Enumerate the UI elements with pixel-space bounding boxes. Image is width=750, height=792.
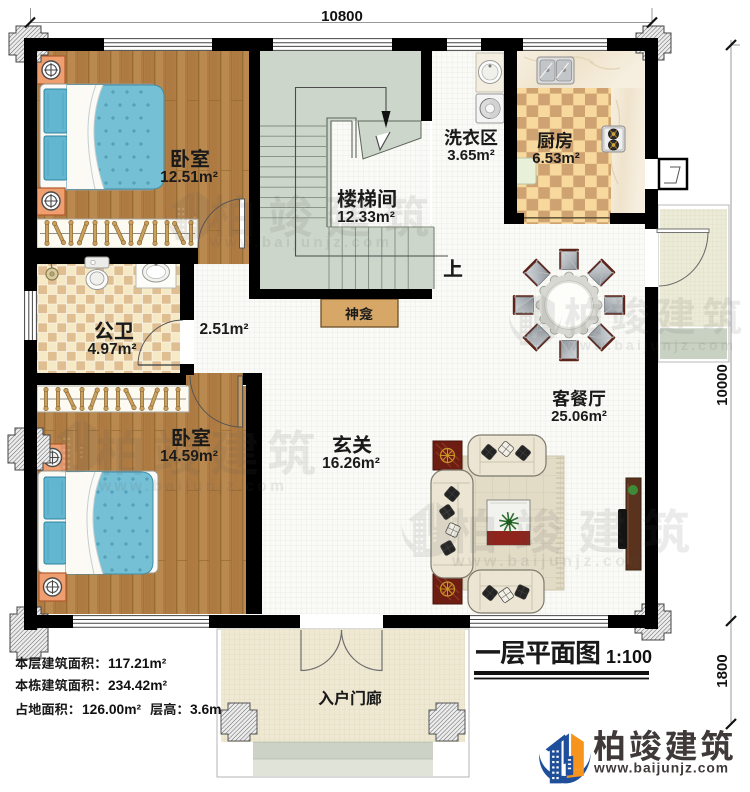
svg-text:2.51m²: 2.51m² <box>199 321 248 338</box>
svg-text:16.26m²: 16.26m² <box>322 455 380 472</box>
svg-text:10800: 10800 <box>321 8 363 25</box>
svg-text:www.baijunjz.com: www.baijunjz.com <box>565 337 736 353</box>
svg-text:117.21m²: 117.21m² <box>108 656 167 671</box>
svg-text:1:100: 1:100 <box>606 647 652 667</box>
svg-text:4.97m²: 4.97m² <box>87 341 136 358</box>
svg-text:3.6m: 3.6m <box>190 702 221 717</box>
svg-text:126.00m²: 126.00m² <box>82 702 141 717</box>
svg-text:www.baijunjz.com: www.baijunjz.com <box>209 234 392 251</box>
svg-text:www.baijunjz.com: www.baijunjz.com <box>451 553 646 570</box>
svg-text:1800: 1800 <box>714 654 731 687</box>
svg-text:www.baijunjz.com: www.baijunjz.com <box>98 478 287 495</box>
svg-text:234.42m²: 234.42m² <box>108 678 167 693</box>
svg-text:10000: 10000 <box>714 364 731 406</box>
svg-text:www.baijunjz.com: www.baijunjz.com <box>593 761 729 776</box>
svg-text:25.06m²: 25.06m² <box>551 408 607 425</box>
svg-text:12.51m²: 12.51m² <box>160 169 218 186</box>
svg-text:6.53m²: 6.53m² <box>532 150 580 167</box>
svg-text:3.65m²: 3.65m² <box>447 147 495 164</box>
